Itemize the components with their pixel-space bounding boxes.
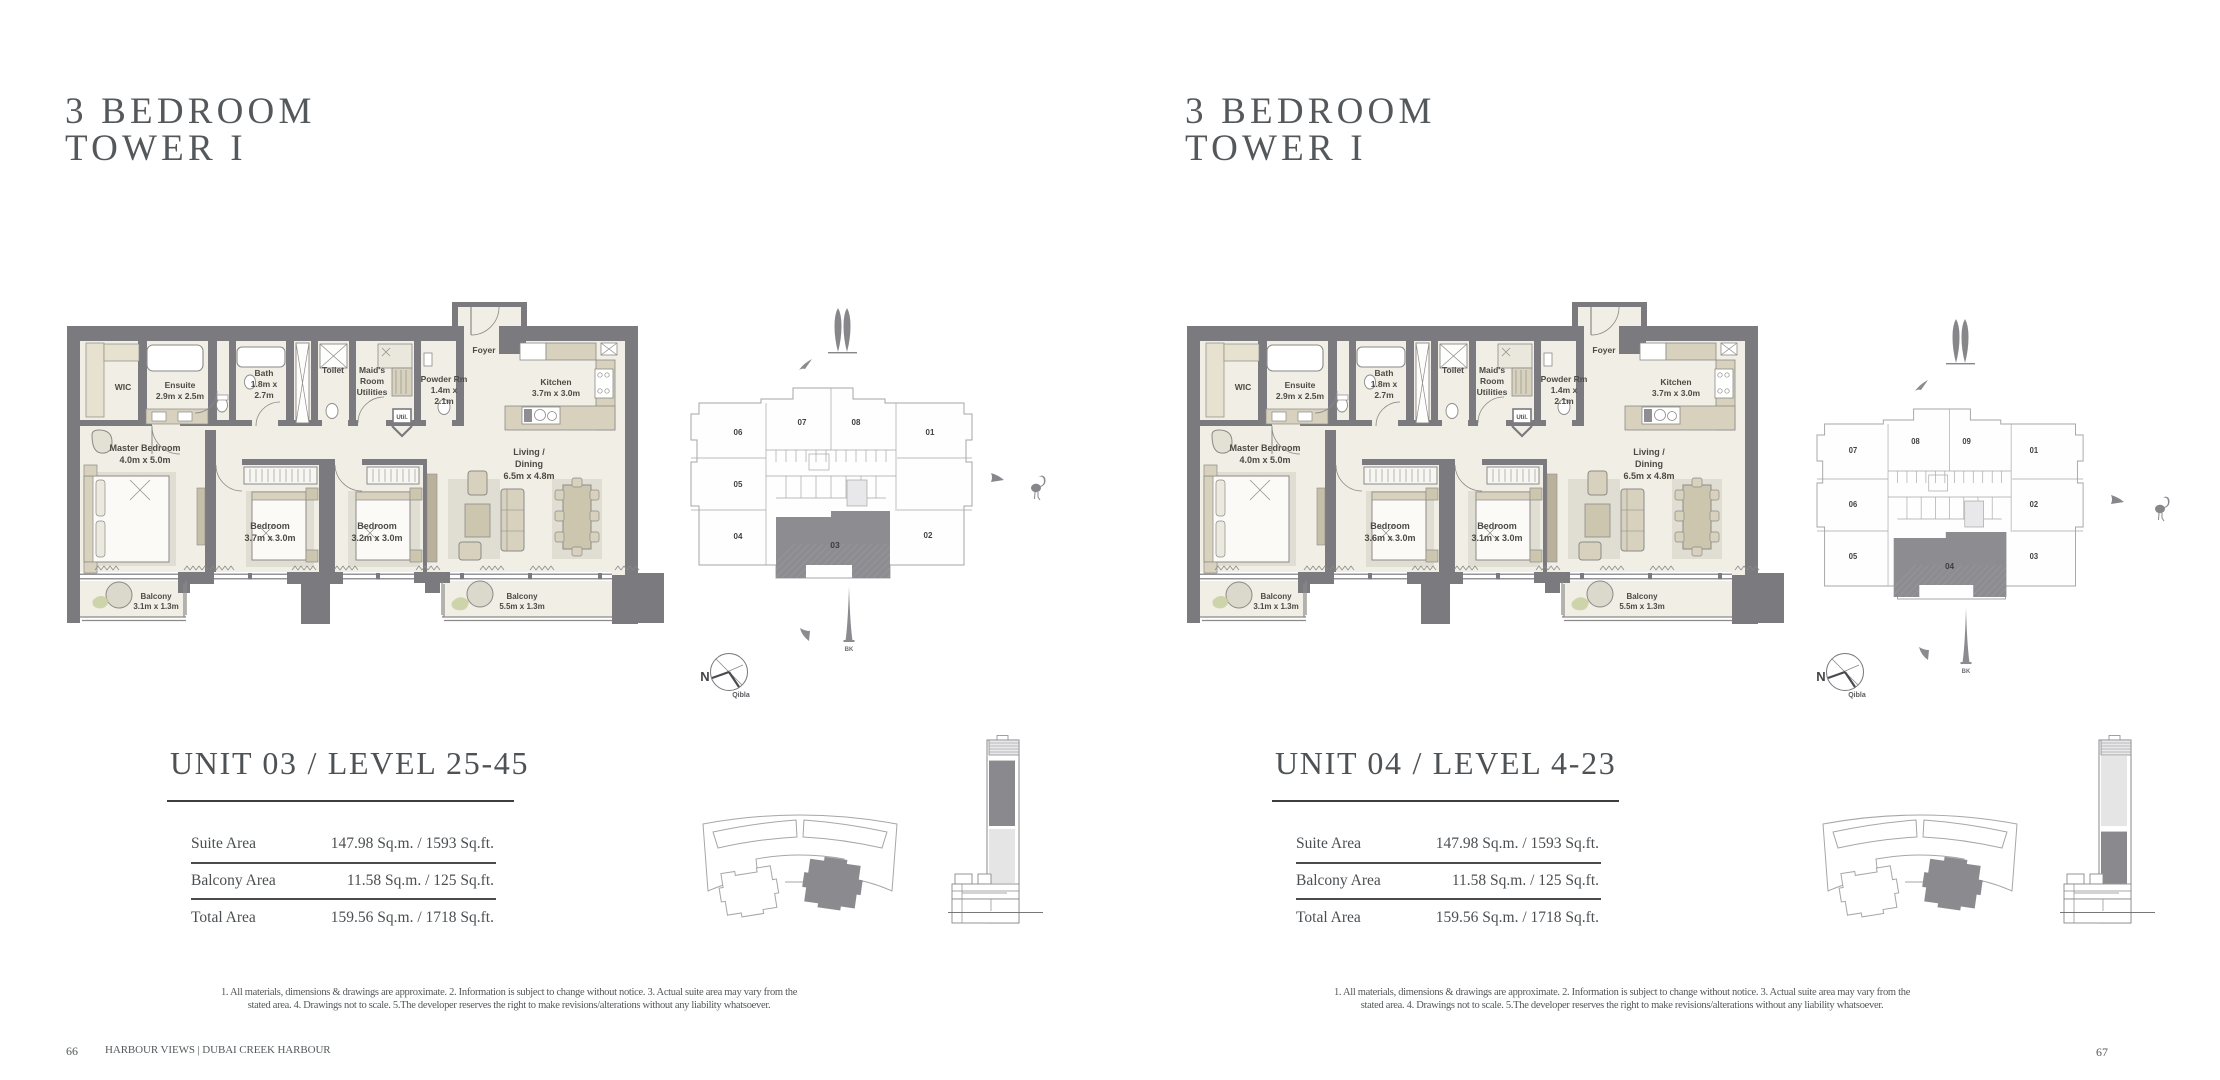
svg-text:2.1m: 2.1m xyxy=(434,396,454,406)
svg-text:01: 01 xyxy=(2030,446,2039,455)
svg-text:02: 02 xyxy=(924,531,933,540)
svg-text:Util.: Util. xyxy=(1516,415,1528,421)
svg-text:Powder Rm: Powder Rm xyxy=(1541,374,1588,384)
svg-text:1.8m x: 1.8m x xyxy=(251,379,278,389)
svg-text:Living /: Living / xyxy=(513,447,545,457)
svg-text:Balcony: Balcony xyxy=(506,592,538,601)
svg-text:3.1m x 1.3m: 3.1m x 1.3m xyxy=(1253,602,1298,611)
svg-text:Qibla: Qibla xyxy=(1848,692,1866,699)
svg-text:03: 03 xyxy=(2030,552,2039,561)
svg-text:Room: Room xyxy=(360,376,385,386)
svg-text:Toilet: Toilet xyxy=(1442,365,1464,375)
svg-text:02: 02 xyxy=(2030,500,2039,509)
svg-text:Utilities: Utilities xyxy=(1477,387,1508,397)
svg-text:Room: Room xyxy=(1480,376,1505,386)
svg-text:Toilet: Toilet xyxy=(322,365,344,375)
svg-text:3.2m x 3.0m: 3.2m x 3.0m xyxy=(351,533,402,543)
svg-text:Ensuite: Ensuite xyxy=(165,380,196,390)
svg-text:Ensuite: Ensuite xyxy=(1285,380,1316,390)
svg-text:3.7m x 3.0m: 3.7m x 3.0m xyxy=(244,533,295,543)
svg-text:2.9m x 2.5m: 2.9m x 2.5m xyxy=(1276,391,1325,401)
svg-text:Balcony: Balcony xyxy=(140,592,172,601)
svg-text:Bath: Bath xyxy=(1375,368,1394,378)
svg-text:Utilities: Utilities xyxy=(357,387,388,397)
svg-text:N: N xyxy=(1816,669,1825,684)
svg-text:04: 04 xyxy=(1945,562,1954,571)
svg-text:WIC: WIC xyxy=(1235,382,1252,392)
svg-text:Master Bedroom: Master Bedroom xyxy=(1229,443,1300,453)
svg-text:Living /: Living / xyxy=(1633,447,1665,457)
svg-text:4.0m x 5.0m: 4.0m x 5.0m xyxy=(119,455,170,465)
svg-text:3.6m x 3.0m: 3.6m x 3.0m xyxy=(1364,533,1415,543)
svg-text:1.4m x: 1.4m x xyxy=(1551,385,1578,395)
svg-text:08: 08 xyxy=(1911,437,1920,446)
svg-text:1.4m x: 1.4m x xyxy=(431,385,458,395)
svg-text:Bath: Bath xyxy=(255,368,274,378)
svg-text:Balcony: Balcony xyxy=(1260,592,1292,601)
svg-text:3.1m x 1.3m: 3.1m x 1.3m xyxy=(133,602,178,611)
svg-text:Balcony: Balcony xyxy=(1626,592,1658,601)
svg-text:1.8m x: 1.8m x xyxy=(1371,379,1398,389)
svg-text:Maid's: Maid's xyxy=(1479,365,1505,375)
svg-text:2.1m: 2.1m xyxy=(1554,396,1574,406)
svg-text:Dining: Dining xyxy=(515,459,543,469)
svg-text:07: 07 xyxy=(798,418,807,427)
svg-text:Dining: Dining xyxy=(1635,459,1663,469)
svg-text:06: 06 xyxy=(1849,500,1858,509)
svg-text:2.7m: 2.7m xyxy=(254,390,274,400)
svg-text:N: N xyxy=(700,669,709,684)
svg-text:Qibla: Qibla xyxy=(732,692,750,699)
svg-text:3.1m x 3.0m: 3.1m x 3.0m xyxy=(1471,533,1522,543)
svg-text:08: 08 xyxy=(852,418,861,427)
svg-text:05: 05 xyxy=(734,480,743,489)
svg-text:Maid's: Maid's xyxy=(359,365,385,375)
svg-text:Bedroom: Bedroom xyxy=(250,521,290,531)
svg-text:Kitchen: Kitchen xyxy=(540,377,571,387)
svg-text:Bedroom: Bedroom xyxy=(357,521,397,531)
svg-text:5.5m x 1.3m: 5.5m x 1.3m xyxy=(499,602,544,611)
svg-text:Foyer: Foyer xyxy=(1592,345,1616,355)
svg-text:BK: BK xyxy=(845,647,854,653)
svg-text:5.5m x 1.3m: 5.5m x 1.3m xyxy=(1619,602,1664,611)
svg-text:Bedroom: Bedroom xyxy=(1477,521,1517,531)
svg-text:01: 01 xyxy=(926,428,935,437)
svg-text:Foyer: Foyer xyxy=(472,345,496,355)
svg-text:2.9m x 2.5m: 2.9m x 2.5m xyxy=(156,391,205,401)
svg-text:6.5m x 4.8m: 6.5m x 4.8m xyxy=(503,471,554,481)
svg-text:Bedroom: Bedroom xyxy=(1370,521,1410,531)
svg-text:07: 07 xyxy=(1849,446,1857,455)
svg-text:09: 09 xyxy=(1962,437,1971,446)
svg-text:4.0m x 5.0m: 4.0m x 5.0m xyxy=(1239,455,1290,465)
svg-text:05: 05 xyxy=(1849,552,1858,561)
svg-text:03: 03 xyxy=(830,540,840,550)
svg-text:Powder Rm: Powder Rm xyxy=(421,374,468,384)
svg-text:3.7m x 3.0m: 3.7m x 3.0m xyxy=(1652,388,1701,398)
svg-text:Kitchen: Kitchen xyxy=(1660,377,1691,387)
svg-text:WIC: WIC xyxy=(115,382,132,392)
svg-text:06: 06 xyxy=(734,428,743,437)
svg-text:Util.: Util. xyxy=(396,415,408,421)
svg-text:3.7m x 3.0m: 3.7m x 3.0m xyxy=(532,388,581,398)
svg-text:2.7m: 2.7m xyxy=(1374,390,1394,400)
svg-text:BK: BK xyxy=(1962,669,1971,675)
svg-text:Master Bedroom: Master Bedroom xyxy=(109,443,180,453)
svg-text:04: 04 xyxy=(734,532,743,541)
svg-text:6.5m x 4.8m: 6.5m x 4.8m xyxy=(1623,471,1674,481)
